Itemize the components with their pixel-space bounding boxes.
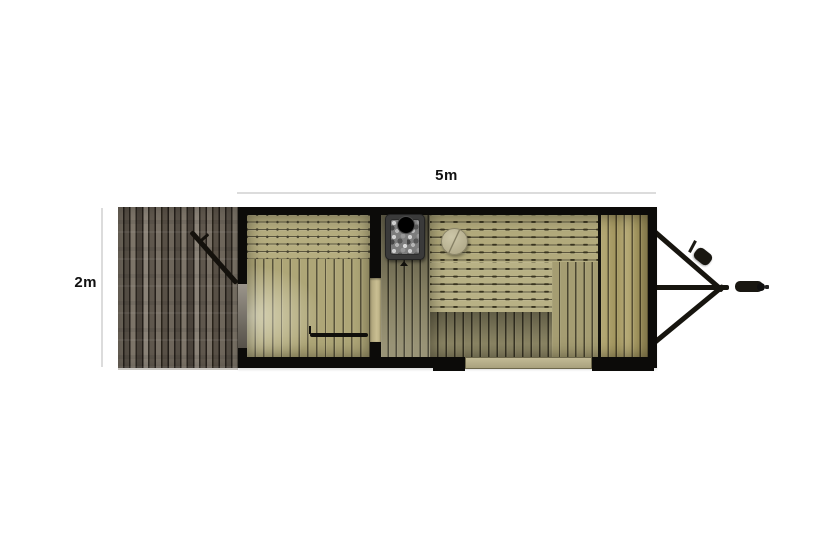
round-stool: [441, 228, 468, 255]
stove-vent-marker: [400, 261, 408, 266]
drawbar-upper-arm: [649, 227, 724, 293]
mid-bench-step: [552, 262, 598, 357]
wall-bench-bar: [310, 333, 368, 337]
changing-room-bench: [247, 215, 370, 259]
right-wall-bench: [601, 215, 648, 357]
width-dimension-line: [237, 192, 656, 194]
lower-bench: [430, 262, 552, 312]
hitch-nub: [765, 285, 769, 289]
partition-doorway: [370, 278, 381, 342]
hitch-pin-icon: [757, 283, 765, 291]
entry-door-threshold: [238, 284, 247, 348]
wood-deck: [118, 207, 238, 368]
drawbar-center-beam: [651, 285, 729, 290]
bottom-window: [465, 357, 592, 369]
sauna-stove: [385, 214, 425, 260]
floor-plan-canvas: 5m 2m: [0, 0, 818, 554]
sauna-floor: [430, 312, 552, 357]
width-dimension-label: 5m: [237, 167, 656, 184]
stove-chimney-icon: [398, 217, 414, 233]
sauna-unit: [238, 207, 657, 368]
depth-dimension-line: [101, 208, 103, 367]
depth-dimension-label: 2m: [55, 274, 97, 291]
bottom-wall-step-right: [592, 357, 654, 371]
bottom-wall-step-left: [433, 357, 465, 371]
wall-bench-bracket: [309, 326, 311, 334]
drawbar-lower-arm: [649, 284, 725, 348]
changing-room-floor: [247, 259, 370, 357]
changing-room: [247, 215, 370, 357]
